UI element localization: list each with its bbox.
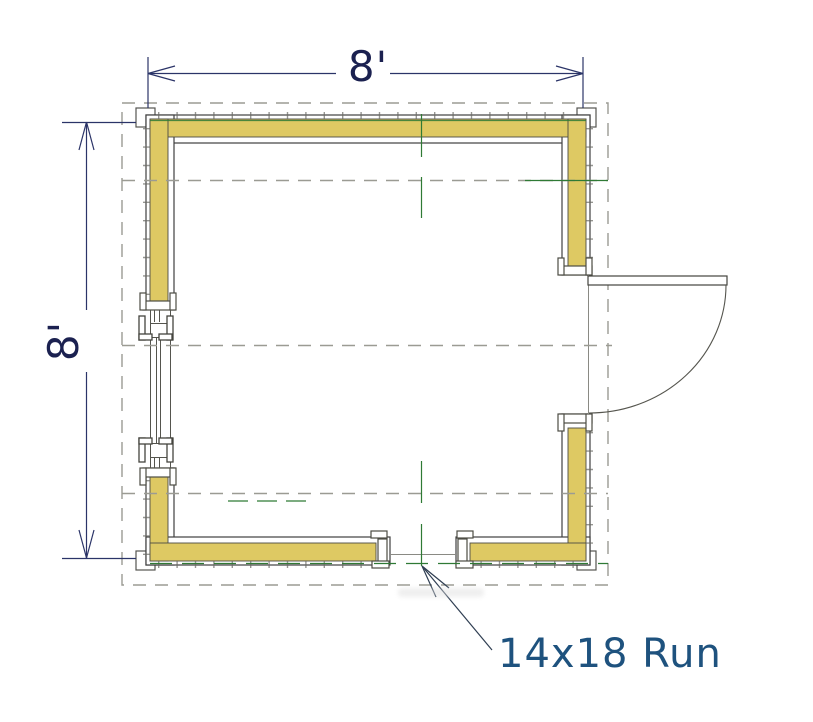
green-centerlines: [150, 114, 608, 566]
dimension-top-label: 8': [322, 46, 414, 88]
guide-dashed-lines: [122, 181, 612, 494]
window-symbol: [139, 310, 173, 468]
faint-watermark: [398, 588, 484, 597]
dimension-left-label: 8': [35, 311, 93, 371]
stud-tick-marks: [147, 116, 590, 565]
wall-fill-cores: [150, 119, 586, 561]
door-symbol: [588, 275, 727, 414]
door-swing-arc: [589, 285, 726, 413]
wall-end-caps: [140, 258, 592, 568]
corner-post-markers: [136, 108, 596, 570]
run-annotation-label: 14x18 Run: [498, 632, 722, 676]
boundary-dashed-rect: [122, 103, 608, 585]
plan-linework: [0, 0, 813, 722]
wall-shells: [146, 115, 590, 565]
door-panel: [588, 276, 727, 285]
leader-arrow: [422, 566, 492, 650]
floor-plan-canvas: 8' 8' 14x18 Run: [0, 0, 813, 722]
